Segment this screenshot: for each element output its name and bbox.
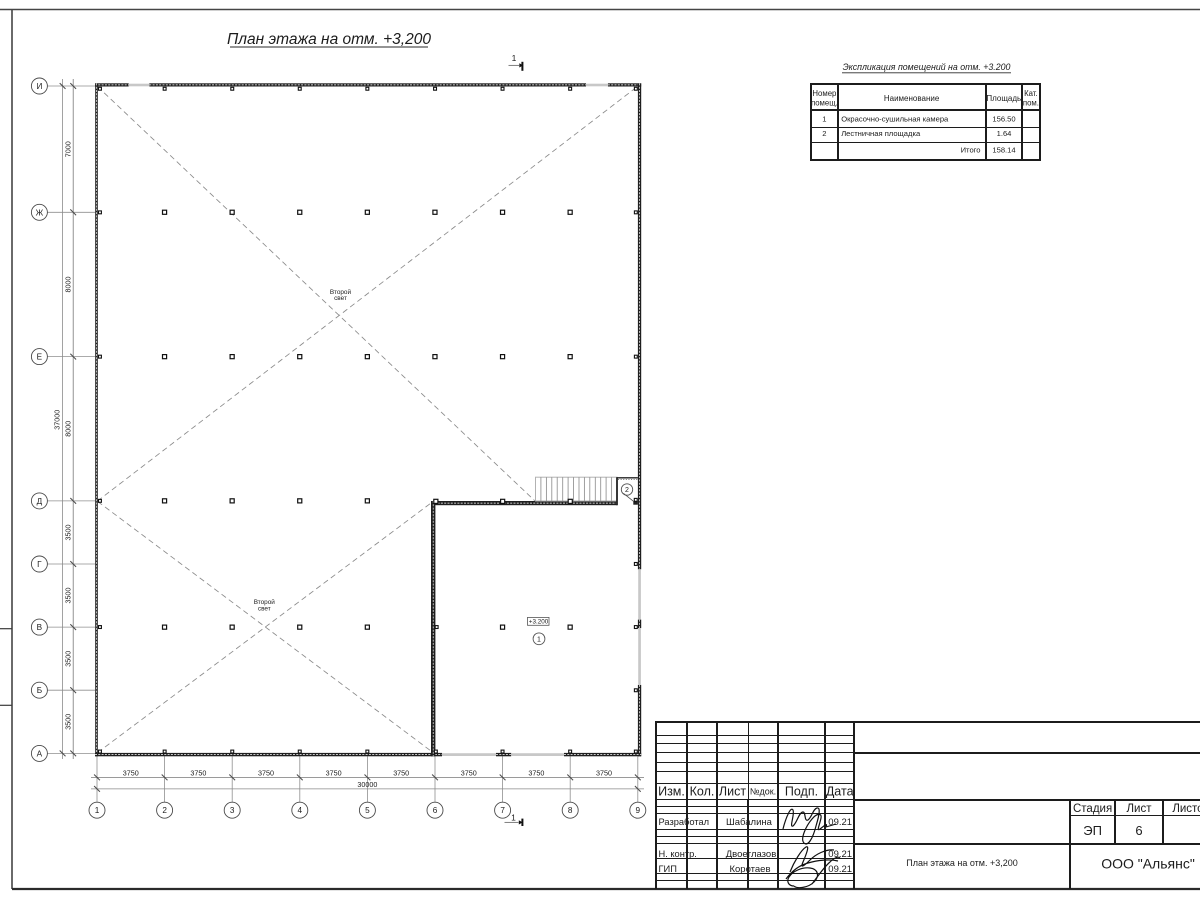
svg-text:Е: Е xyxy=(37,353,43,362)
svg-text:7: 7 xyxy=(500,806,505,815)
svg-text:3500: 3500 xyxy=(63,651,72,667)
svg-text:свет: свет xyxy=(258,605,271,612)
svg-text:6: 6 xyxy=(433,806,438,815)
svg-text:Г: Г xyxy=(37,560,42,569)
svg-text:3750: 3750 xyxy=(528,769,544,778)
svg-text:Номер: Номер xyxy=(812,89,837,98)
svg-text:Разработал: Разработал xyxy=(659,817,710,827)
svg-text:Дата: Дата xyxy=(826,784,854,798)
svg-text:09.21: 09.21 xyxy=(828,864,852,875)
svg-text:3750: 3750 xyxy=(190,769,206,778)
svg-text:4: 4 xyxy=(298,806,303,815)
svg-text:План этажа на отм. +3,200: План этажа на отм. +3,200 xyxy=(906,858,1018,868)
svg-text:Изм.: Изм. xyxy=(658,784,685,798)
svg-text:Лестничная площадка: Лестничная площадка xyxy=(841,129,921,138)
svg-text:Окрасочно-сушильная камера: Окрасочно-сушильная камера xyxy=(841,114,949,123)
svg-text:План этажа на отм. +3,200: План этажа на отм. +3,200 xyxy=(227,31,431,48)
svg-text:2: 2 xyxy=(822,129,826,138)
svg-text:Шабалина: Шабалина xyxy=(726,817,773,828)
svg-text:3750: 3750 xyxy=(393,769,409,778)
svg-text:Ж: Ж xyxy=(36,208,44,217)
svg-text:1: 1 xyxy=(822,114,826,123)
svg-text:158.14: 158.14 xyxy=(992,146,1015,155)
svg-text:09.21: 09.21 xyxy=(828,817,852,828)
svg-text:ГИП: ГИП xyxy=(659,864,677,874)
svg-text:8000: 8000 xyxy=(63,277,72,293)
svg-text:Стадия: Стадия xyxy=(1073,803,1112,815)
svg-text:3750: 3750 xyxy=(461,769,477,778)
svg-text:ООО "Альянс": ООО "Альянс" xyxy=(1101,855,1195,871)
svg-text:3750: 3750 xyxy=(258,769,274,778)
svg-text:помещ.: помещ. xyxy=(811,99,838,108)
svg-text:Лист: Лист xyxy=(719,784,746,798)
svg-text:Н. контр.: Н. контр. xyxy=(659,849,697,859)
svg-text:7000: 7000 xyxy=(63,141,72,157)
svg-text:1: 1 xyxy=(512,53,517,63)
svg-text:Б: Б xyxy=(37,686,42,695)
svg-text:8000: 8000 xyxy=(63,421,72,437)
svg-text:1: 1 xyxy=(95,806,100,815)
svg-text:37000: 37000 xyxy=(52,410,61,430)
svg-text:Кат.: Кат. xyxy=(1024,89,1038,98)
svg-text:В: В xyxy=(37,623,43,632)
svg-text:1: 1 xyxy=(537,636,541,643)
svg-text:3: 3 xyxy=(230,806,235,815)
svg-text:Итого: Итого xyxy=(961,146,981,155)
svg-text:30000: 30000 xyxy=(357,780,377,789)
svg-text:3500: 3500 xyxy=(63,714,72,730)
svg-text:№док.: №док. xyxy=(750,787,776,797)
svg-text:пом.: пом. xyxy=(1023,99,1039,108)
svg-text:3500: 3500 xyxy=(63,525,72,541)
svg-text:Экспликация помещений на отм.: Экспликация помещений на отм. +3.200 xyxy=(843,62,1011,72)
svg-text:2: 2 xyxy=(625,487,629,494)
svg-text:Площадь: Площадь xyxy=(986,94,1021,103)
svg-text:8: 8 xyxy=(568,806,573,815)
svg-text:3750: 3750 xyxy=(326,769,342,778)
svg-text:Лист: Лист xyxy=(1127,803,1153,815)
svg-text:Кол.: Кол. xyxy=(690,784,715,798)
svg-text:Подп.: Подп. xyxy=(785,784,818,798)
svg-text:09.21: 09.21 xyxy=(828,849,852,860)
svg-text:Коротаев: Коротаев xyxy=(729,864,770,875)
svg-text:156.50: 156.50 xyxy=(992,114,1015,123)
svg-text:И: И xyxy=(36,82,42,91)
svg-text:1.64: 1.64 xyxy=(997,129,1012,138)
svg-text:ЭП: ЭП xyxy=(1083,823,1102,838)
svg-text:9: 9 xyxy=(636,806,641,815)
svg-text:Наименование: Наименование xyxy=(884,94,940,103)
svg-text:Двоеглазов: Двоеглазов xyxy=(726,849,777,860)
svg-text:+3.200: +3.200 xyxy=(529,618,549,625)
svg-text:3750: 3750 xyxy=(123,769,139,778)
svg-text:свет: свет xyxy=(334,295,347,302)
svg-text:Листов: Листов xyxy=(1172,803,1200,815)
svg-text:А: А xyxy=(37,749,43,758)
svg-text:5: 5 xyxy=(365,806,370,815)
svg-text:Д: Д xyxy=(37,497,43,506)
svg-text:6: 6 xyxy=(1135,823,1142,838)
svg-text:3500: 3500 xyxy=(63,588,72,604)
svg-text:1: 1 xyxy=(511,812,516,822)
svg-text:3750: 3750 xyxy=(596,769,612,778)
svg-text:2: 2 xyxy=(162,806,167,815)
